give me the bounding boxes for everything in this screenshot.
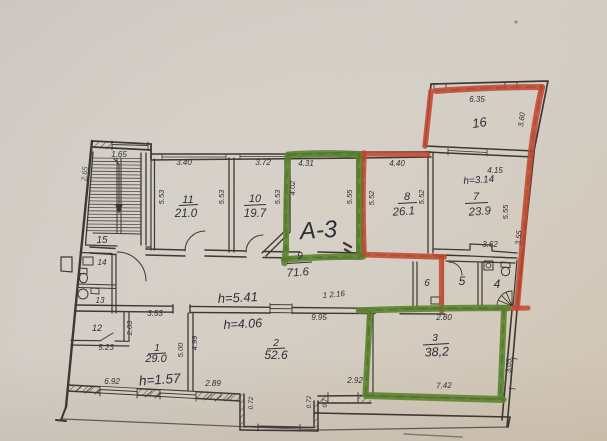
svg-text:4.31: 4.31 (298, 159, 314, 168)
svg-text:h=5.41: h=5.41 (217, 289, 258, 306)
svg-text:8: 8 (404, 191, 411, 203)
svg-text:5.55: 5.55 (345, 189, 354, 204)
svg-text:3.62: 3.62 (482, 240, 498, 249)
svg-text:19.7: 19.7 (244, 208, 267, 220)
svg-text:5.55: 5.55 (501, 204, 510, 219)
svg-text:6.35: 6.35 (469, 95, 485, 104)
svg-text:h=1.57: h=1.57 (138, 371, 181, 389)
svg-text:7.42: 7.42 (436, 381, 452, 391)
svg-text:10: 10 (249, 193, 262, 205)
svg-text:4: 4 (494, 277, 501, 291)
svg-text:26.1: 26.1 (391, 205, 415, 219)
svg-text:3: 3 (432, 333, 438, 344)
svg-text:4.40: 4.40 (389, 159, 405, 168)
svg-text:6: 6 (424, 278, 430, 289)
svg-text:4.99: 4.99 (190, 335, 199, 350)
svg-text:6.92: 6.92 (104, 377, 120, 386)
svg-text:16: 16 (471, 114, 488, 131)
svg-text:71.6: 71.6 (286, 266, 310, 280)
svg-text:3.53: 3.53 (147, 309, 163, 318)
svg-text:12: 12 (92, 323, 102, 333)
svg-text:52.6: 52.6 (264, 348, 288, 362)
svg-text:11: 11 (182, 194, 193, 206)
svg-text:5: 5 (459, 274, 466, 288)
svg-text:3.40: 3.40 (176, 158, 192, 167)
svg-text:3.05: 3.05 (504, 357, 514, 373)
svg-text:А-3: А-3 (297, 216, 339, 246)
svg-text:2.03: 2.03 (125, 320, 134, 336)
svg-text:5.53: 5.53 (157, 189, 166, 204)
svg-text:14: 14 (98, 258, 107, 267)
svg-text:9: 9 (297, 251, 303, 262)
svg-text:2.65: 2.65 (79, 165, 89, 182)
svg-text:3.55: 3.55 (513, 229, 523, 245)
svg-text:h=3.14: h=3.14 (463, 174, 495, 187)
svg-text:5.00: 5.00 (176, 342, 185, 357)
svg-text:2.80: 2.80 (435, 313, 452, 322)
svg-text:3.72: 3.72 (255, 158, 271, 167)
svg-text:4.02: 4.02 (288, 180, 297, 195)
svg-text:0.72: 0.72 (306, 395, 313, 408)
svg-text:9.95: 9.95 (311, 313, 327, 322)
svg-text:5.53: 5.53 (217, 189, 226, 204)
svg-text:15: 15 (96, 235, 108, 246)
svg-text:7: 7 (473, 191, 480, 203)
svg-text:29.0: 29.0 (144, 353, 167, 365)
svg-text:13: 13 (96, 296, 105, 305)
svg-text:0.72: 0.72 (248, 396, 255, 409)
svg-text:2.89: 2.89 (204, 379, 221, 388)
svg-text:1.65: 1.65 (111, 150, 127, 159)
svg-text:5.23: 5.23 (98, 343, 114, 352)
svg-text:0.7: 0.7 (322, 398, 329, 407)
svg-text:23.9: 23.9 (467, 205, 492, 219)
svg-text:5.52: 5.52 (367, 190, 376, 205)
svg-text:h=4.06: h=4.06 (223, 316, 262, 332)
svg-text:5.53: 5.53 (273, 189, 282, 204)
svg-text:5.52: 5.52 (417, 189, 426, 204)
svg-text:2.92: 2.92 (346, 376, 363, 385)
svg-text:38,2: 38,2 (424, 344, 449, 359)
svg-text:21.0: 21.0 (174, 208, 198, 220)
